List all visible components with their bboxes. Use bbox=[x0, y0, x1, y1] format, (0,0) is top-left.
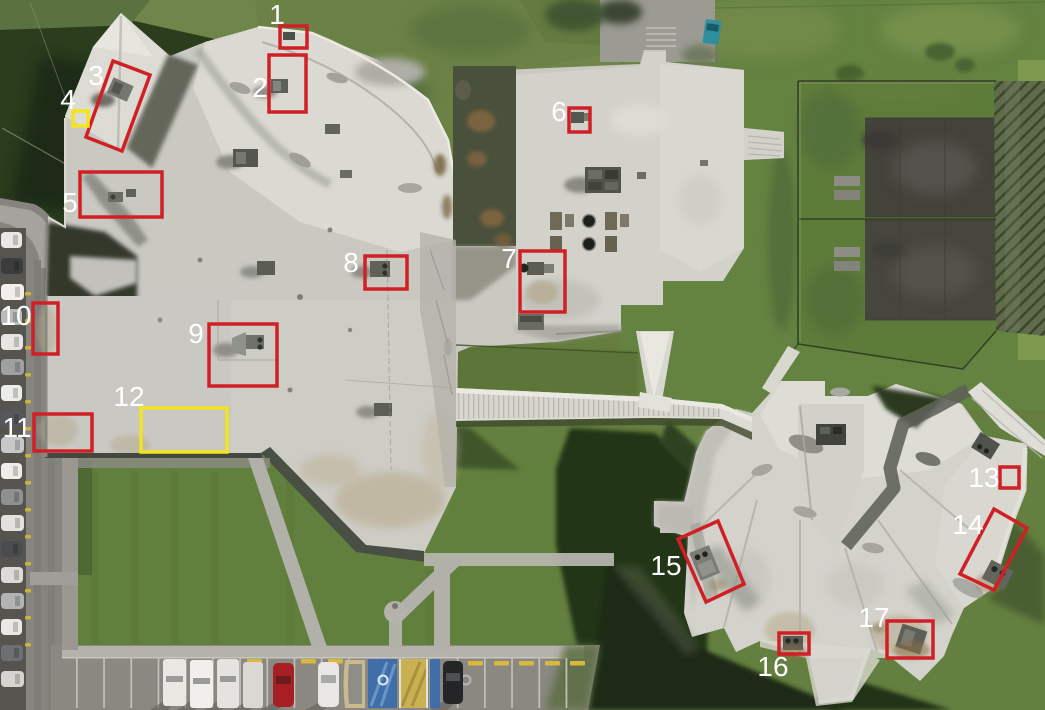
svg-text:7: 7 bbox=[501, 243, 517, 274]
svg-text:9: 9 bbox=[188, 318, 204, 349]
svg-text:5: 5 bbox=[62, 187, 78, 218]
svg-text:6: 6 bbox=[551, 96, 567, 127]
svg-text:11: 11 bbox=[2, 412, 31, 443]
svg-text:4: 4 bbox=[60, 84, 76, 115]
svg-text:8: 8 bbox=[343, 247, 359, 278]
svg-text:3: 3 bbox=[88, 60, 104, 91]
svg-text:15: 15 bbox=[650, 550, 681, 581]
svg-text:1: 1 bbox=[269, 0, 285, 30]
svg-text:16: 16 bbox=[757, 651, 788, 682]
svg-text:17: 17 bbox=[858, 602, 889, 633]
svg-text:14: 14 bbox=[952, 509, 983, 540]
svg-text:12: 12 bbox=[113, 381, 144, 412]
svg-text:10: 10 bbox=[0, 300, 31, 331]
svg-text:13: 13 bbox=[968, 462, 999, 493]
svg-text:2: 2 bbox=[252, 72, 268, 103]
